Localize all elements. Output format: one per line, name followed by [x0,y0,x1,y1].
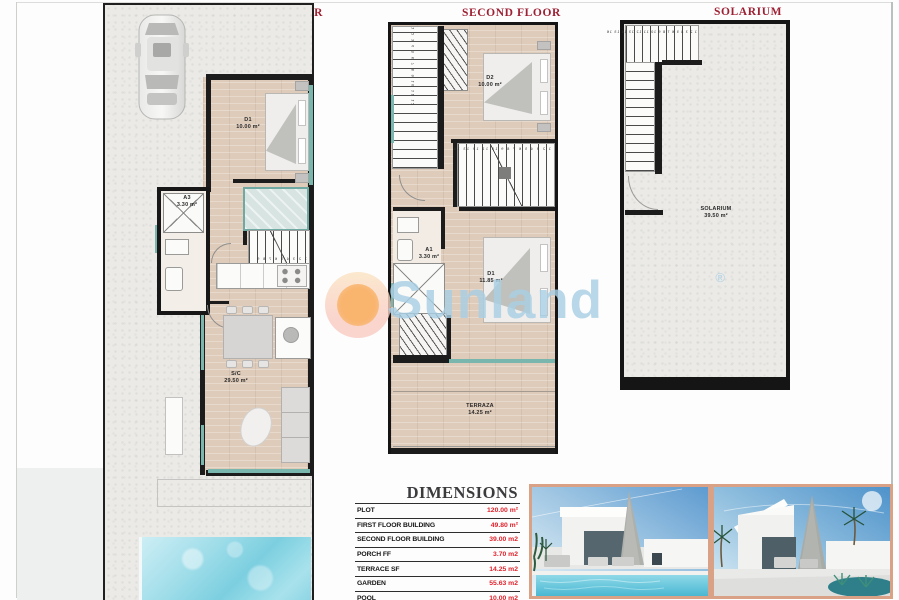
nightstand [537,123,551,132]
second-floor-plan: 1 2 3 4 5 6 7 8 9 10 11 12 D2 10.00 m² 1… [388,22,558,454]
cabinet [165,397,183,455]
room-label-a3: A3 3.30 m² [177,195,197,209]
villa-render-image [532,487,708,596]
nightstand [537,41,551,50]
bed [265,93,309,171]
floorplan-brochure-page: FIRST FLOOR SECOND FLOOR SOLARIUM [0,0,899,600]
stair-numbers: 1 2 3 4 5 6 7 8 9 [251,257,307,261]
table-row: GARDEN 55.63 m2 [355,576,520,591]
dimensions-title: DIMENSIONS [355,483,520,503]
nightstand [295,81,309,91]
neighbor-area [17,468,103,600]
stair-numbers: 1 2 3 4 5 6 7 8 9 10 11 12 [411,27,415,163]
table-row: SECOND FLOOR BUILDING 39.00 m2 [355,532,520,547]
stair-landing [499,167,511,179]
second-floor-title: SECOND FLOOR [462,7,561,19]
solarium-plan: 1 2 3 4 5 6 7 8 9 10 11 12 13 14 15 16 S… [620,20,790,390]
toilet [397,239,413,261]
nightstand [295,173,309,183]
door-arc [628,176,658,210]
room-label-solarium: SOLARIUM 39.50 m² [701,206,732,220]
porch [157,479,311,507]
staircase-down-run [625,62,655,172]
sun-icon [325,272,391,338]
dining-table [223,315,273,359]
villa-photo-garden [711,484,893,599]
stove [277,265,307,287]
wardrobe [399,313,447,357]
first-floor-plan: D1 10.00 m² A3 3.30 m² 1 2 3 4 5 6 7 8 9 [103,3,314,600]
stair-numbers: 1 2 3 4 5 6 7 8 9 10 11 12 13 14 [461,147,551,151]
room-label-sc: S/C 29.50 m² [224,371,248,385]
pool [139,537,311,600]
stool [283,327,299,343]
room-label-a1: A1 3.30 m² [419,247,439,261]
villa-render-image [714,487,890,596]
staircase-upper [392,26,438,169]
dimensions-table: DIMENSIONS PLOT 120.00 m² FIRST FLOOR BU… [355,483,520,600]
table-row: PLOT 120.00 m² [355,503,520,518]
room-label-d2: D2 10.00 m² [478,75,502,89]
room-label-d1: D1 10.00 m² [236,117,260,131]
sink [397,217,419,233]
table-row: PORCH FF 3.70 m2 [355,547,520,562]
terraza-divider [393,391,555,392]
room-label-d1-sf: D1 11.85 m² [479,271,502,285]
villa-photo-pool [529,484,711,599]
glass-void [243,187,309,231]
toilet [165,267,183,291]
room-label-terraza: TERRAZA 14.25 m² [466,403,494,417]
sun-icon-core [337,284,379,326]
shower [393,263,445,315]
table-row: POOL 10.00 m2 [355,591,520,600]
table-row: TERRACE SF 14.25 m2 [355,561,520,576]
table-row: FIRST FLOOR BUILDING 49.80 m² [355,518,520,533]
sink [165,239,189,255]
solarium-title: SOLARIUM [714,6,782,18]
sofa [281,387,310,463]
car-icon [133,13,191,121]
wardrobe [440,29,468,91]
stair-numbers: 1 2 3 4 5 6 7 8 9 10 11 12 13 14 15 16 [627,30,697,34]
